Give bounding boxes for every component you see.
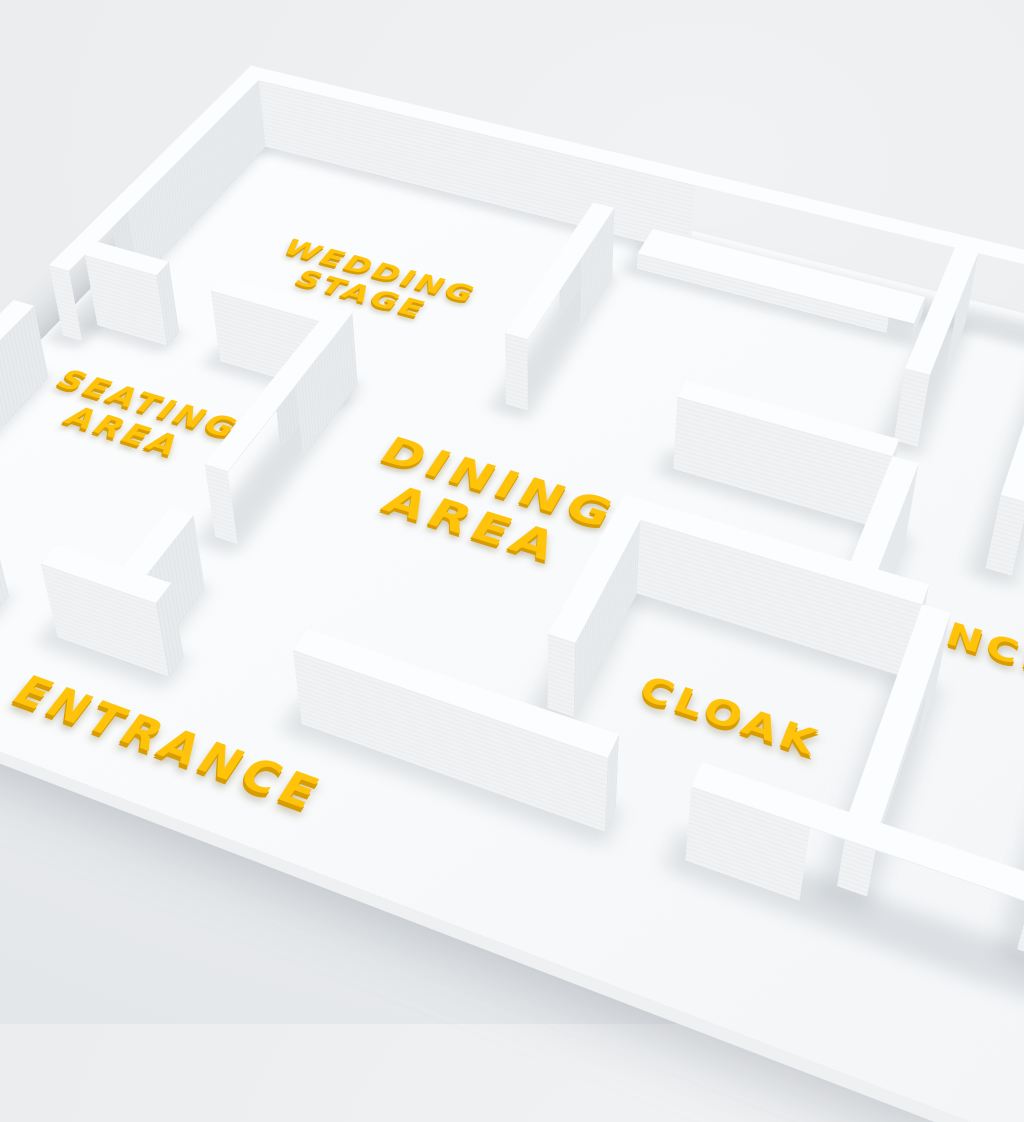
floorplan-scene: WEDDING STAGE SEATING AREA DINING AREA D… [0,0,1024,1024]
floorplan-model: WEDDING STAGE SEATING AREA DINING AREA D… [0,132,1024,1015]
page-background: { "scene": { "description": "3D wedding … [0,0,1024,1024]
wall-face-south [548,634,576,717]
wall-face-south [505,333,528,411]
